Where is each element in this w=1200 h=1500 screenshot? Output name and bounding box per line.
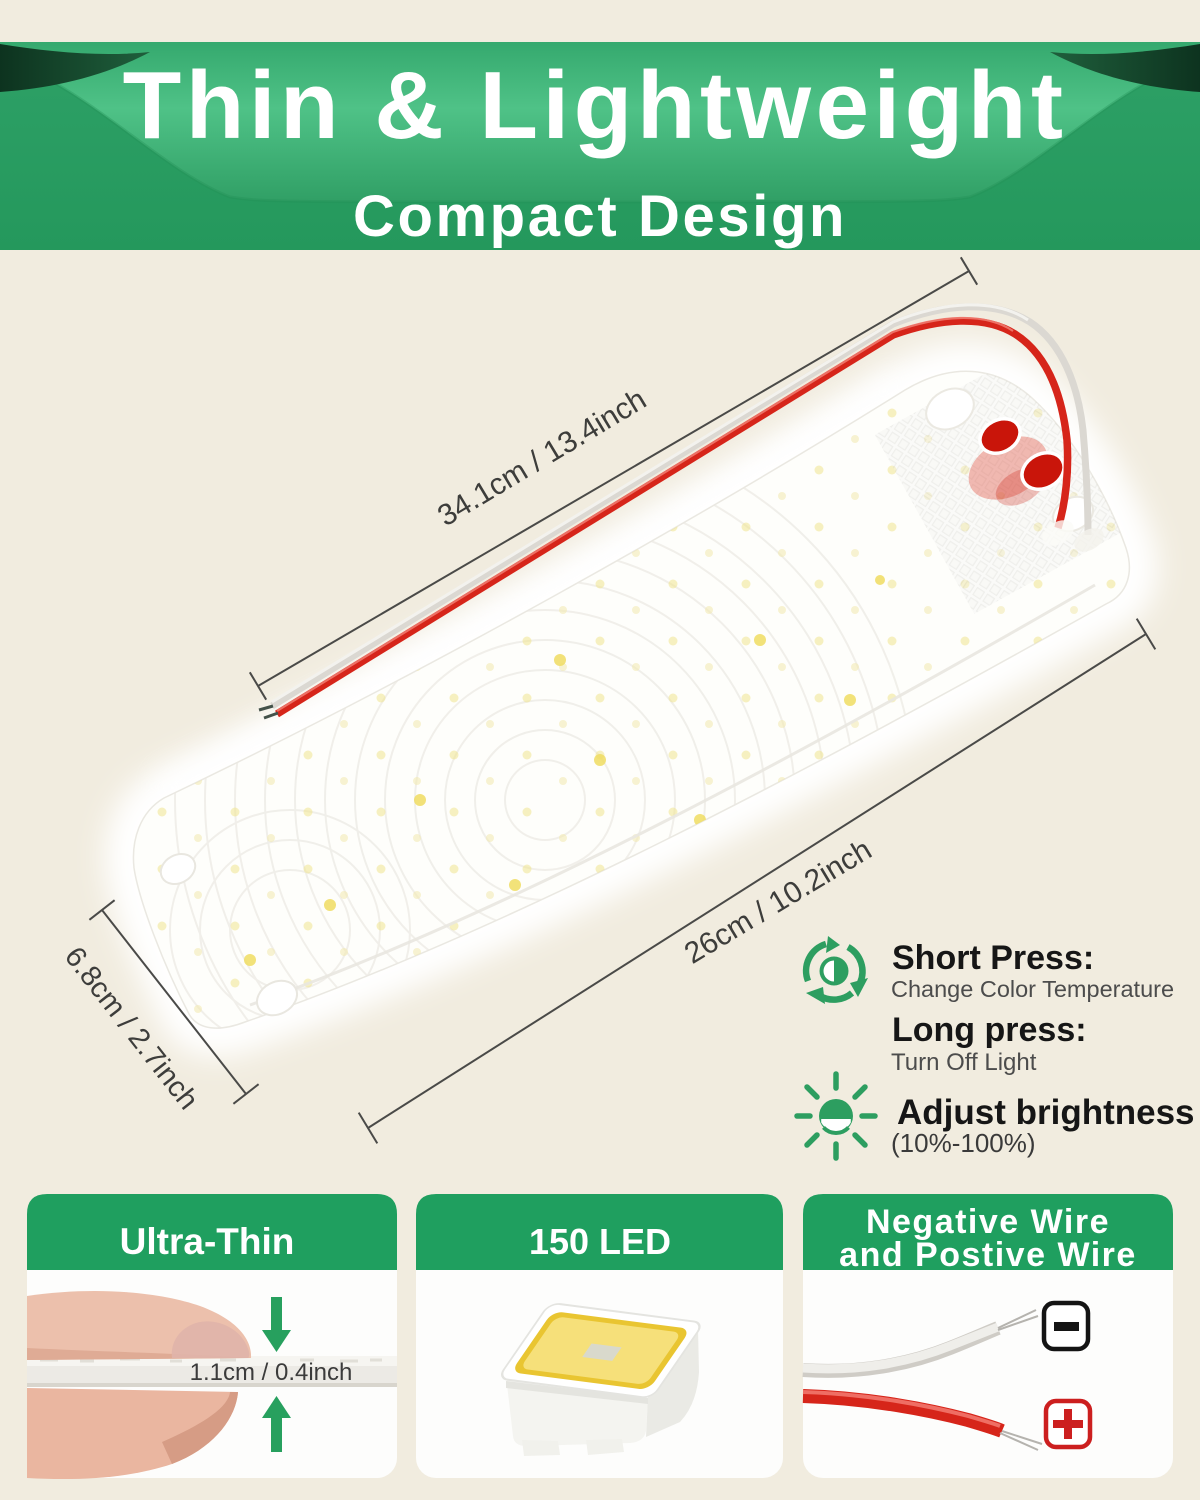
svg-text:Turn Off Light: Turn Off Light xyxy=(891,1049,1037,1076)
svg-text:150 LED: 150 LED xyxy=(529,1221,671,1262)
svg-text:(10%-100%): (10%-100%) xyxy=(891,1128,1036,1158)
svg-text:Short Press:: Short Press: xyxy=(892,939,1094,977)
svg-text:Ultra-Thin: Ultra-Thin xyxy=(120,1221,295,1262)
svg-text:Change Color Temperature: Change Color Temperature xyxy=(891,976,1174,1002)
svg-text:Adjust brightness: Adjust brightness xyxy=(897,1093,1195,1132)
svg-text:Thin & Lightweight: Thin & Lightweight xyxy=(123,52,1068,159)
svg-text:and Postive Wire: and Postive Wire xyxy=(839,1236,1137,1274)
svg-text:Long press:: Long press: xyxy=(892,1011,1087,1049)
svg-text:Compact Design: Compact Design xyxy=(353,184,847,249)
svg-text:1.1cm / 0.4inch: 1.1cm / 0.4inch xyxy=(190,1359,353,1386)
